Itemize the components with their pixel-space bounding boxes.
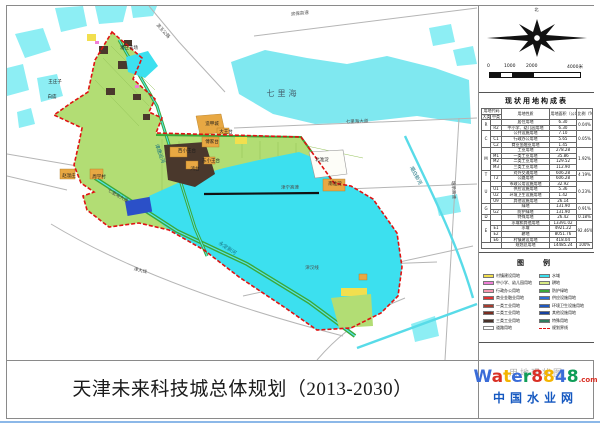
legend-swatch — [483, 296, 494, 300]
landuse-table-body: R居住用地6.300.04%R2中小学、幼儿园用地6.30C公共设施用地7.10… — [482, 120, 593, 249]
map-label: 大王台 — [219, 131, 233, 136]
watermark: Water8848.com 中国水业网 — [472, 368, 599, 406]
legend-swatch — [539, 328, 550, 329]
map-label: 鸿台 — [191, 168, 200, 173]
map-label: 潘庄农场 — [120, 47, 138, 52]
map-label: 南淮淀 — [328, 183, 342, 188]
watermark-suffix: .com — [579, 376, 598, 384]
legend-label: 行政办公用地 — [496, 288, 520, 294]
pct-cell: 0.91% — [577, 204, 593, 215]
pct-cell: 0.05% — [577, 131, 593, 148]
pct-cell: 92.46% — [577, 220, 593, 242]
legend-swatch — [539, 281, 550, 285]
legend-swatch — [539, 304, 550, 308]
scale-segment — [501, 73, 512, 77]
th-area: 用地面积（公顷） — [550, 109, 577, 120]
legend-swatch — [483, 304, 494, 308]
watermark-letter: r — [523, 367, 531, 387]
table-row: 规划总用地14485.24100% — [482, 243, 593, 249]
page-title: 天津未来科技城总体规划（2013-2030） — [7, 361, 478, 418]
legend-item: 商业金融业用地 — [483, 295, 538, 303]
scale-labels: 0100020004000米 — [487, 64, 587, 70]
th-code-group: 用地代码 — [482, 109, 502, 115]
map-area: 七里海潮白新河津唐运河永定新河滨保高速滨玉公路七里海大道七里海大道津宁高速津汉线… — [7, 6, 478, 360]
legend-label: 其他设施用地 — [552, 310, 576, 316]
area-cell: 13391.02 — [550, 220, 577, 226]
divider — [479, 342, 594, 343]
legend-swatch — [539, 319, 550, 323]
map-label: 赵温庄 — [62, 175, 76, 180]
legend-swatch — [483, 281, 494, 285]
divider — [479, 92, 594, 93]
map-label: 七里海 — [267, 90, 300, 98]
pct-cell: 0.18% — [577, 215, 593, 221]
code-major-cell: C — [482, 131, 491, 148]
code-major-cell: M — [482, 148, 491, 170]
watermark-letter: 8 — [543, 367, 555, 387]
legend-item: 三类工业用地 — [483, 317, 538, 325]
title-band: 天津未来科技城总体规划（2013-2030） — [7, 360, 478, 418]
landuse-name-cell: 规划总用地 — [502, 243, 550, 249]
th-code-major: 大类 — [482, 114, 491, 120]
legend-item: 道路用地 — [483, 325, 538, 333]
pct-cell: 100% — [577, 243, 593, 249]
legend-swatch — [483, 319, 494, 323]
code-major-cell: G — [482, 204, 491, 215]
legend-item: 其他设施用地 — [539, 310, 594, 318]
legend-label: 防护绿地 — [552, 288, 568, 294]
scale-tick-label: 2000 — [526, 64, 537, 69]
legend-swatch — [483, 326, 494, 330]
landuse-name-cell: 中小学、幼儿园用地 — [502, 125, 550, 131]
legend-item: 一类工业用地 — [483, 302, 538, 310]
watermark-letter: 8 — [567, 367, 579, 387]
legend-label: 三类工业用地 — [496, 318, 520, 324]
legend-item: 水域 — [539, 272, 594, 280]
legend-label: 特殊用地 — [552, 318, 568, 324]
code-major-cell: U — [482, 181, 491, 203]
scale-segment — [534, 73, 578, 77]
legend-swatch — [539, 311, 550, 315]
legend-swatch — [483, 289, 494, 293]
map-labels-layer: 七里海潮白新河津唐运河永定新河滨保高速滨玉公路七里海大道七里海大道津宁高速津汉线… — [7, 6, 478, 360]
pct-cell: 4.19% — [577, 170, 593, 181]
map-label: 永定新河 — [217, 241, 237, 256]
map-label: 塘承高速 — [449, 181, 454, 199]
th-name: 用地性质 — [502, 109, 550, 120]
legend-item: 耕地 — [539, 280, 594, 288]
legend-item: 村镇建设用地 — [483, 272, 538, 280]
legend-label: 耕地 — [552, 280, 560, 286]
legend-item: 中小学、幼儿园用地 — [483, 280, 538, 288]
watermark-brand: Water8848.com — [472, 368, 599, 387]
legend-column-left: 村镇建设用地中小学、幼儿园用地行政办公用地商业金融业用地一类工业用地二类工业用地… — [483, 272, 538, 332]
map-label: 王庄子 — [48, 81, 62, 86]
map-label: 西小王台 — [178, 150, 196, 155]
legend-label: 水域 — [552, 273, 560, 279]
watermark-site-name: 中国水业网 — [472, 389, 599, 406]
scale-bar — [489, 72, 581, 78]
scale-segment — [490, 73, 501, 77]
map-label: 滨保高速 — [291, 12, 309, 18]
scale-tick-label: 4000米 — [567, 64, 583, 70]
legend-label: 供应设施用地 — [552, 295, 576, 301]
code-cell — [482, 243, 502, 249]
legend-item: 环境卫生设施用地 — [539, 302, 594, 310]
area-cell: 14485.24 — [550, 243, 577, 249]
legend-swatch — [539, 274, 550, 278]
legend-title: 图 例 — [479, 258, 594, 268]
legend-item: 防护绿地 — [539, 287, 594, 295]
legend-item: 供应设施用地 — [539, 295, 594, 303]
pct-cell: 1.92% — [577, 148, 593, 170]
map-label: 潮白新河 — [408, 166, 422, 186]
th-pct: 比例（%） — [577, 109, 593, 120]
legend-swatch — [483, 274, 494, 278]
code-major-cell: T — [482, 170, 491, 181]
legend-swatch — [483, 311, 494, 315]
divider — [479, 252, 594, 253]
legend-item: 行政办公用地 — [483, 287, 538, 295]
watermark-letter: 4 — [555, 367, 567, 387]
map-label: 津大线 — [133, 268, 147, 276]
legend-label: 一类工业用地 — [496, 303, 520, 309]
th-code-minor: 中类 — [491, 114, 502, 120]
map-label: 东小王台 — [202, 160, 220, 165]
watermark-letter: 8 — [531, 367, 543, 387]
map-label: 白庙 — [48, 96, 57, 101]
legend-item: 规划界线 — [539, 325, 594, 333]
pct-cell: 0.04% — [577, 120, 593, 131]
watermark-letter: a — [492, 367, 503, 387]
map-label: 滨玉公路 — [154, 24, 169, 40]
legend-label: 环境卫生设施用地 — [552, 303, 584, 309]
map-label: 造甲城 — [205, 123, 219, 128]
pct-cell: 0.23% — [577, 181, 593, 203]
compass-rose-icon — [479, 10, 594, 62]
scale-segment — [512, 73, 534, 77]
table-title: 现状用地构成表 — [479, 96, 594, 106]
legend-label: 二类工业用地 — [496, 310, 520, 316]
legend-label: 道路用地 — [496, 325, 512, 331]
legend-label: 村镇建设用地 — [496, 273, 520, 279]
legend-item: 二类工业用地 — [483, 310, 538, 318]
map-label: 周学村 — [92, 176, 106, 181]
map-label: 七里海大道 — [106, 189, 128, 204]
scale-tick-label: 1000 — [504, 64, 515, 69]
map-label: 傅家台 — [205, 141, 219, 146]
sidebar: 北 0100020004000米 现状用地构成表 用地代码 用地性质 用地面积（… — [478, 6, 594, 360]
code-major-cell: E — [482, 220, 491, 242]
map-label: 七里海大道 — [346, 120, 369, 125]
map-label: 津汉线 — [305, 267, 319, 272]
code-major-cell: R — [482, 120, 491, 131]
scale-tick-label: 0 — [487, 64, 490, 69]
legend-label: 中小学、幼儿园用地 — [496, 280, 532, 286]
legend-label: 商业金融业用地 — [496, 295, 524, 301]
watermark-letter: e — [511, 367, 523, 387]
legend-label: 规划界线 — [552, 325, 568, 331]
landuse-table: 用地代码 用地性质 用地面积（公顷） 比例（%） 大类 中类 R居住用地6.30… — [481, 108, 593, 249]
legend-item: 特殊用地 — [539, 317, 594, 325]
bottom-accent-line — [0, 421, 600, 423]
legend-column-right: 水域耕地防护绿地供应设施用地环境卫生设施用地其他设施用地特殊用地规划界线 — [539, 272, 594, 332]
map-label: 北淮淀 — [315, 159, 329, 164]
map-label: 津唐运河 — [153, 144, 165, 165]
map-label: 津宁高速 — [281, 187, 299, 192]
legend-swatch — [539, 296, 550, 300]
legend-swatch — [539, 289, 550, 293]
watermark-letter: W — [474, 367, 492, 387]
